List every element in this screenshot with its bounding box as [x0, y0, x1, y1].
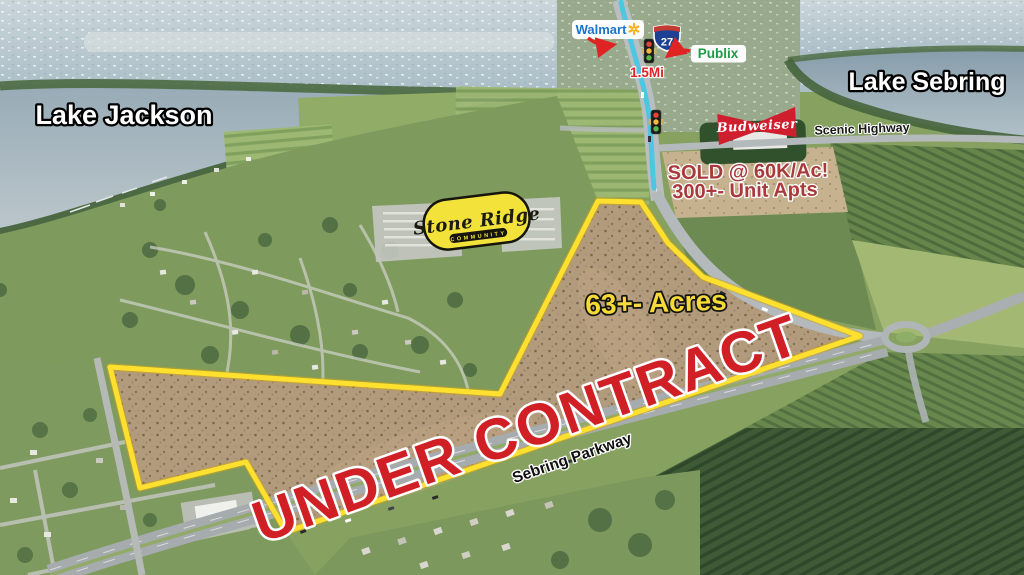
lake-sebring-label: Lake Sebring [849, 68, 1006, 96]
lake-jackson-label: Lake Jackson [35, 100, 212, 130]
aerial-photo-canvas: 27 Walmart Publix 1.5Mi Budweiser Scenic… [0, 0, 1024, 575]
publix-label: Publix [698, 46, 739, 61]
sold-units-label: 300+- Unit Apts [672, 179, 818, 204]
route-number: 27 [661, 37, 673, 49]
walmart-label: Walmart [576, 22, 627, 37]
distance-marker-label: 1.5Mi [630, 65, 664, 80]
sold-note: SOLD @ 60K/Ac! 300+- Unit Apts [667, 160, 828, 204]
aerial-listing-image: 27 Walmart Publix 1.5Mi Budweiser Scenic… [0, 0, 1024, 575]
acreage-label: 63+- Acres [585, 285, 727, 321]
